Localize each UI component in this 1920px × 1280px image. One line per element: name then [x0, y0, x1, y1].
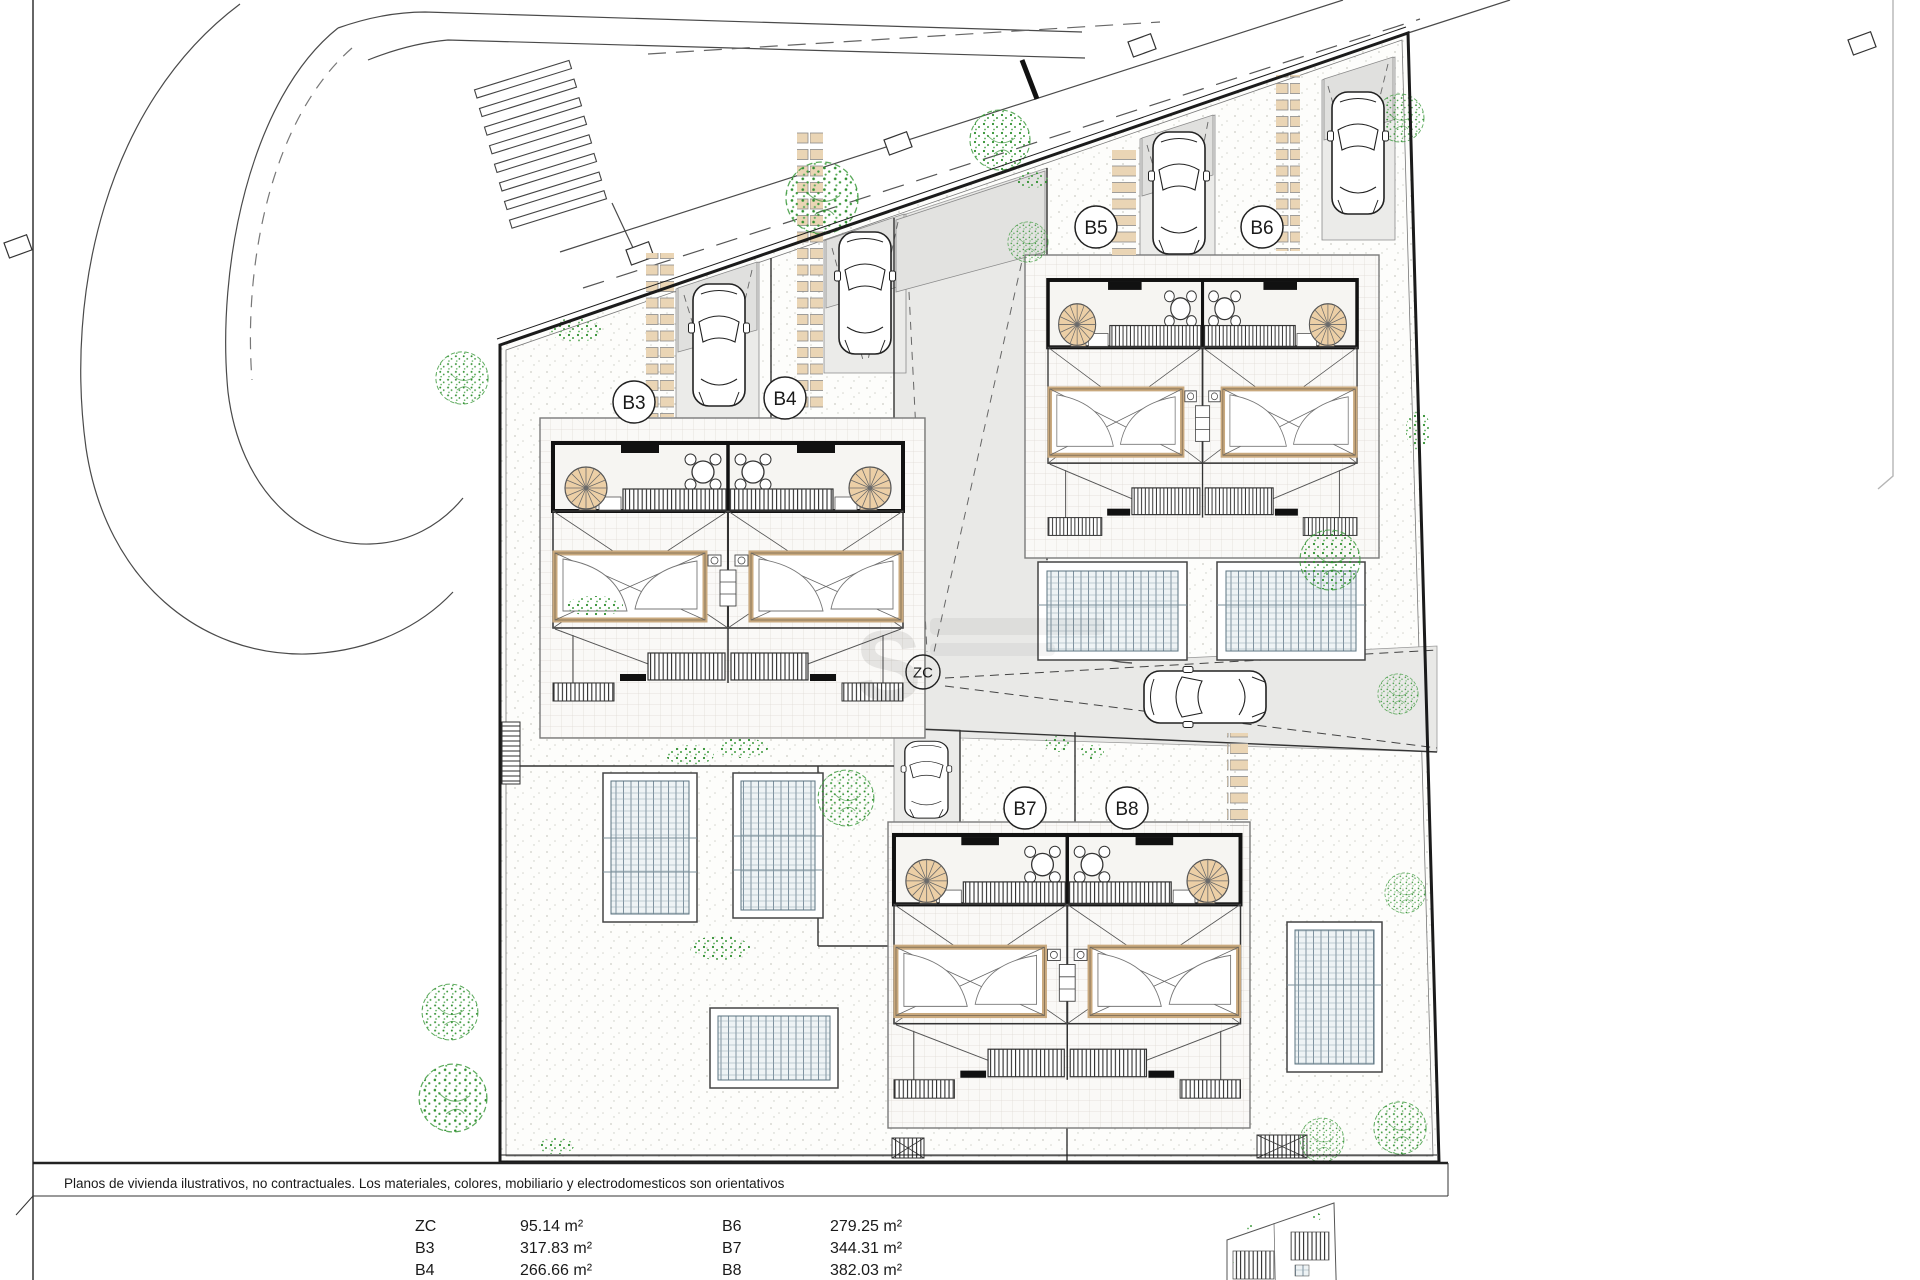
tree-icon — [1385, 873, 1425, 913]
shrub-scatter — [690, 936, 750, 960]
plot-label-b8: B8 — [1106, 787, 1148, 829]
pool — [733, 773, 823, 918]
legend-area: 95.14 m² — [520, 1218, 584, 1235]
car-icon — [1144, 667, 1266, 728]
plot-label-b3: B3 — [613, 381, 655, 423]
road-edge-top-1 — [338, 12, 1082, 32]
legend-area: 382.03 m² — [830, 1262, 903, 1279]
pergola-strip — [1227, 733, 1248, 826]
tree-icon — [1300, 530, 1360, 590]
pool — [1038, 562, 1187, 660]
plot-label-b5: B5 — [1075, 206, 1117, 248]
crosswalk-icon — [474, 60, 606, 228]
pool — [603, 773, 697, 922]
svg-text:B4: B4 — [773, 389, 797, 410]
marker-icon — [4, 235, 32, 258]
roundabout-inner-curve — [226, 28, 463, 544]
legend-area: 317.83 m² — [520, 1240, 593, 1257]
pergola-strip — [1112, 150, 1136, 255]
legend-code: B8 — [722, 1262, 742, 1279]
road-edge-top-2 — [368, 40, 1085, 60]
disclaimer-bar: Planos de vivienda ilustrativos, no cont… — [16, 1163, 1448, 1215]
shrub-scatter — [567, 596, 623, 616]
ladder-icon — [502, 722, 520, 784]
car-icon — [689, 284, 750, 406]
plot-label-b4: B4 — [764, 377, 806, 419]
site-plan-svg: B3 B4 B5 B6 B7 B8 ZC S Planos de viviend… — [0, 0, 1920, 1280]
tree-icon — [1008, 222, 1048, 262]
roundabout-outer-curve — [81, 4, 453, 654]
area-legend: ZC 95.14 m² B3 317.83 m² B4 266.66 m² B6… — [415, 1218, 903, 1279]
road-tick-mark — [1022, 60, 1037, 99]
pool — [710, 1008, 838, 1088]
curb-connector — [612, 203, 634, 250]
legend-code: B6 — [722, 1218, 742, 1235]
tree-icon — [970, 110, 1030, 170]
plot-label-b7: B7 — [1004, 787, 1046, 829]
tree-icon — [1378, 674, 1418, 714]
plan-sheet: B3 B4 B5 B6 B7 B8 ZC S Planos de viviend… — [0, 0, 1920, 1280]
legend-code: B3 — [415, 1240, 435, 1257]
tree-icon — [786, 162, 858, 234]
svg-text:S: S — [855, 610, 922, 722]
disclaimer-text: Planos de vivienda ilustrativos, no cont… — [64, 1176, 785, 1191]
legend-area: 344.31 m² — [830, 1240, 903, 1257]
legend-code: ZC — [415, 1218, 436, 1235]
shrub-scatter — [538, 1138, 574, 1154]
svg-text:B3: B3 — [622, 393, 645, 414]
car-icon — [901, 741, 952, 818]
tree-icon — [436, 352, 488, 404]
shrub-scatter — [1080, 745, 1104, 759]
car-icon — [1328, 92, 1389, 214]
legend-area: 279.25 m² — [830, 1218, 903, 1235]
car-icon — [1149, 132, 1210, 254]
svg-text:B6: B6 — [1250, 218, 1273, 239]
legend-area: 266.66 m² — [520, 1262, 593, 1279]
shrub-scatter — [716, 738, 768, 758]
marker-icon — [1848, 32, 1876, 55]
pool — [1287, 922, 1382, 1072]
svg-text:B5: B5 — [1084, 218, 1107, 239]
legend-code: B4 — [415, 1262, 435, 1279]
roundabout-dashed-guide — [250, 48, 352, 380]
car-icon — [835, 232, 896, 354]
svg-text:B8: B8 — [1115, 799, 1138, 820]
tree-icon — [818, 770, 874, 826]
marker-icon — [884, 132, 912, 155]
keyplan-thumbnail — [1227, 1203, 1337, 1280]
svg-text:B7: B7 — [1013, 799, 1036, 820]
tree-icon — [422, 984, 478, 1040]
shrub-scatter — [550, 318, 602, 342]
tree-icon — [419, 1064, 487, 1132]
shrub-scatter — [666, 745, 714, 765]
shrub-scatter — [1016, 172, 1048, 188]
marker-icon — [1128, 34, 1156, 57]
reference-line-right — [1878, 0, 1893, 489]
road-edge-corner — [1408, 0, 1510, 33]
legend-code: B7 — [722, 1240, 742, 1257]
shrub-scatter — [1044, 736, 1072, 752]
plot-label-b6: B6 — [1241, 206, 1283, 248]
tree-icon — [1374, 1102, 1426, 1154]
